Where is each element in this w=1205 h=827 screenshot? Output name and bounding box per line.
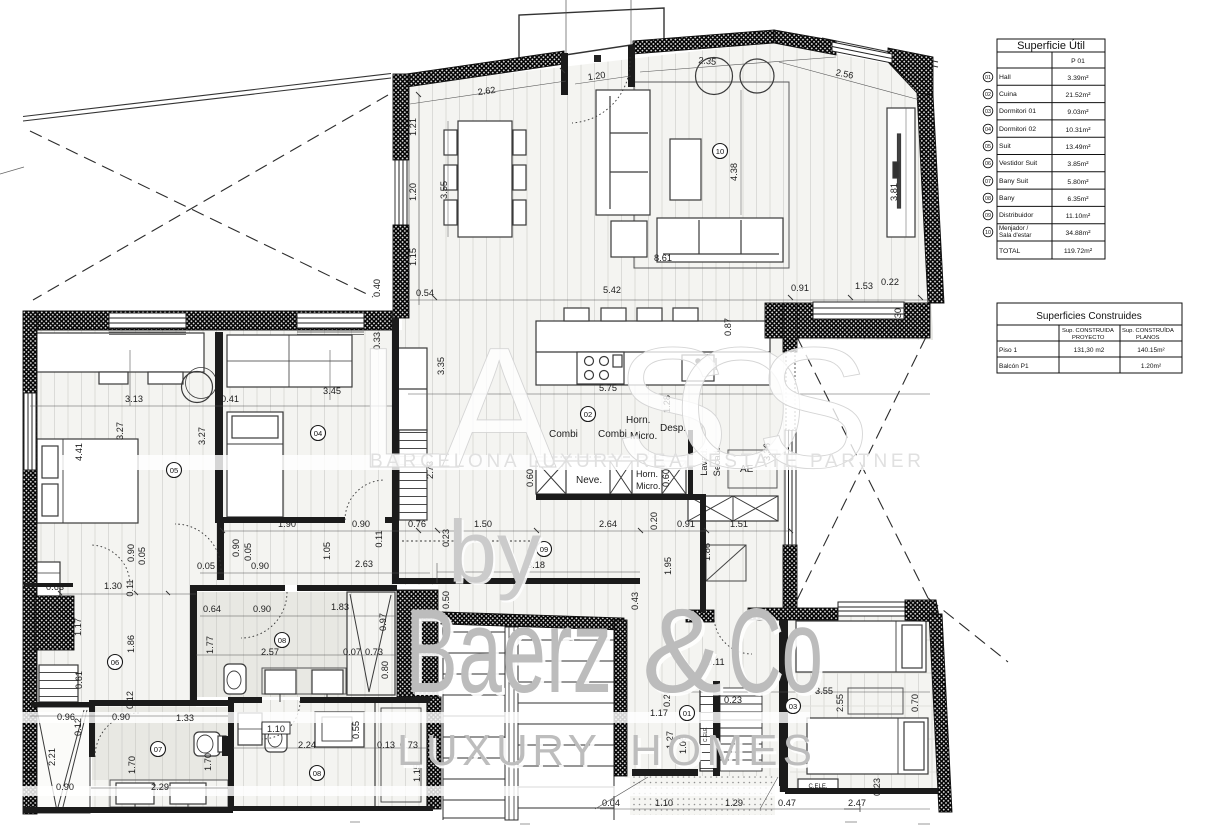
svg-text:LUXURY: LUXURY bbox=[397, 726, 597, 775]
svg-text:1.30: 1.30 bbox=[104, 581, 122, 591]
svg-text:0.40: 0.40 bbox=[372, 279, 382, 297]
svg-text:PLANOS: PLANOS bbox=[1136, 335, 1160, 341]
svg-text:4.38: 4.38 bbox=[729, 163, 739, 181]
svg-text:0.23: 0.23 bbox=[872, 778, 882, 796]
svg-text:0.90: 0.90 bbox=[126, 544, 136, 562]
svg-text:0.47: 0.47 bbox=[778, 798, 796, 808]
svg-text:0.05: 0.05 bbox=[243, 543, 253, 561]
svg-text:1.21: 1.21 bbox=[408, 118, 418, 136]
svg-text:P 01: P 01 bbox=[1071, 58, 1085, 65]
svg-text:Superficies Construides: Superficies Construides bbox=[1036, 311, 1142, 322]
svg-text:3.27: 3.27 bbox=[197, 427, 207, 445]
svg-text:Suit: Suit bbox=[999, 143, 1011, 150]
svg-text:Co: Co bbox=[728, 584, 823, 718]
svg-text:131,30 m2: 131,30 m2 bbox=[1074, 347, 1105, 354]
svg-text:Piso 1: Piso 1 bbox=[999, 347, 1017, 354]
svg-text:3.13: 3.13 bbox=[125, 394, 143, 404]
svg-text:0.13: 0.13 bbox=[377, 740, 395, 750]
svg-text:0.43: 0.43 bbox=[630, 592, 640, 610]
svg-text:34.88m²: 34.88m² bbox=[1066, 230, 1092, 237]
svg-text:0.55: 0.55 bbox=[351, 721, 361, 739]
svg-text:9.03m²: 9.03m² bbox=[1067, 109, 1089, 116]
svg-text:1.90: 1.90 bbox=[278, 519, 296, 529]
svg-text:C.ELE.: C.ELE. bbox=[808, 784, 827, 790]
svg-text:2.55: 2.55 bbox=[835, 694, 845, 712]
svg-text:0.90: 0.90 bbox=[251, 561, 269, 571]
svg-text:0.97: 0.97 bbox=[378, 613, 388, 631]
svg-text:0.22: 0.22 bbox=[881, 277, 899, 287]
svg-text:Neve.: Neve. bbox=[576, 475, 602, 486]
svg-text:0.12: 0.12 bbox=[125, 691, 135, 709]
svg-text:2.29: 2.29 bbox=[151, 782, 169, 792]
svg-text:3.81: 3.81 bbox=[889, 183, 899, 201]
svg-text:Dormitori 02: Dormitori 02 bbox=[999, 126, 1036, 133]
svg-text:06: 06 bbox=[111, 658, 119, 667]
svg-text:07: 07 bbox=[985, 179, 991, 185]
svg-text:Sala d'estar: Sala d'estar bbox=[999, 232, 1031, 239]
svg-text:1.95: 1.95 bbox=[663, 557, 673, 575]
svg-text:Sup. CONSTRUIDA: Sup. CONSTRUIDA bbox=[1062, 328, 1114, 334]
svg-text:2.47: 2.47 bbox=[848, 798, 866, 808]
svg-text:0.12: 0.12 bbox=[73, 718, 83, 736]
svg-text:0.64: 0.64 bbox=[203, 604, 221, 614]
svg-text:HOMES: HOMES bbox=[630, 726, 812, 775]
svg-text:11.10m²: 11.10m² bbox=[1066, 213, 1091, 220]
svg-text:Balcón P1: Balcón P1 bbox=[999, 363, 1029, 370]
svg-text:0.90: 0.90 bbox=[352, 519, 370, 529]
svg-text:21.52m²: 21.52m² bbox=[1066, 92, 1092, 99]
svg-text:3.27: 3.27 bbox=[115, 422, 125, 440]
svg-text:0.05: 0.05 bbox=[197, 561, 215, 571]
svg-text:0.70: 0.70 bbox=[910, 694, 920, 712]
svg-text:1.83: 1.83 bbox=[331, 602, 349, 612]
svg-text:1.53: 1.53 bbox=[855, 281, 873, 291]
svg-text:07: 07 bbox=[154, 745, 162, 754]
svg-text:13.49m²: 13.49m² bbox=[1066, 144, 1092, 151]
svg-text:1.10: 1.10 bbox=[267, 724, 285, 734]
svg-text:04: 04 bbox=[985, 127, 991, 133]
svg-text:Sup. CONSTRUÏDA: Sup. CONSTRUÏDA bbox=[1122, 327, 1174, 334]
svg-text:1.70: 1.70 bbox=[127, 756, 137, 774]
svg-text:L: L bbox=[356, 312, 452, 504]
svg-text:0.07: 0.07 bbox=[343, 647, 361, 657]
svg-text:0.04: 0.04 bbox=[602, 798, 620, 808]
svg-text:A: A bbox=[442, 312, 557, 504]
svg-text:05: 05 bbox=[985, 144, 991, 150]
svg-text:Cuina: Cuina bbox=[999, 91, 1017, 98]
svg-text:Menjador /: Menjador / bbox=[999, 225, 1029, 232]
svg-text:2.57: 2.57 bbox=[261, 647, 279, 657]
svg-text:Bany: Bany bbox=[999, 195, 1015, 202]
svg-text:3.45: 3.45 bbox=[323, 386, 341, 396]
svg-text:1.86: 1.86 bbox=[126, 635, 136, 653]
svg-text:&: & bbox=[642, 584, 722, 718]
svg-text:02: 02 bbox=[985, 92, 991, 98]
svg-text:140.15m²: 140.15m² bbox=[1137, 347, 1165, 354]
svg-text:1.10: 1.10 bbox=[655, 798, 673, 808]
svg-text:09: 09 bbox=[985, 213, 991, 219]
svg-text:5.42: 5.42 bbox=[603, 285, 621, 295]
svg-text:TOTAL: TOTAL bbox=[999, 248, 1020, 255]
svg-text:08: 08 bbox=[313, 769, 321, 778]
svg-text:BARCELONA LUXURY REAL ESTATE P: BARCELONA LUXURY REAL ESTATE PARTNER bbox=[370, 451, 925, 472]
svg-text:04: 04 bbox=[314, 429, 322, 438]
svg-text:Superficie Útil: Superficie Útil bbox=[1017, 39, 1085, 52]
svg-text:6.35m²: 6.35m² bbox=[1067, 196, 1089, 203]
svg-text:2.63: 2.63 bbox=[355, 559, 373, 569]
svg-text:08: 08 bbox=[278, 636, 286, 645]
svg-text:0.05: 0.05 bbox=[137, 547, 147, 565]
svg-text:1.20: 1.20 bbox=[408, 183, 418, 201]
svg-text:0.11: 0.11 bbox=[125, 579, 135, 596]
svg-text:1.70: 1.70 bbox=[203, 753, 213, 771]
svg-text:1.86: 1.86 bbox=[702, 543, 712, 561]
svg-text:1.33: 1.33 bbox=[176, 713, 194, 723]
svg-text:2.64: 2.64 bbox=[599, 519, 617, 529]
svg-text:3.55: 3.55 bbox=[439, 181, 449, 199]
svg-text:1.20m²: 1.20m² bbox=[1141, 363, 1162, 370]
svg-text:0.90: 0.90 bbox=[253, 604, 271, 614]
svg-text:1.77: 1.77 bbox=[205, 636, 215, 654]
svg-text:2.35: 2.35 bbox=[698, 55, 717, 67]
svg-text:Distribuidor: Distribuidor bbox=[999, 212, 1034, 219]
svg-text:0.54: 0.54 bbox=[416, 288, 434, 298]
svg-text:05: 05 bbox=[170, 466, 178, 475]
svg-text:8.61: 8.61 bbox=[654, 253, 672, 263]
svg-text:10: 10 bbox=[716, 147, 724, 156]
svg-text:0.73: 0.73 bbox=[365, 647, 383, 657]
svg-text:PROYECTO: PROYECTO bbox=[1072, 335, 1105, 341]
svg-text:1.05: 1.05 bbox=[322, 542, 332, 560]
svg-text:5.80m²: 5.80m² bbox=[1067, 179, 1089, 186]
svg-text:03: 03 bbox=[985, 109, 991, 115]
svg-text:119.72m²: 119.72m² bbox=[1064, 248, 1093, 255]
svg-text:10.31m²: 10.31m² bbox=[1066, 127, 1092, 134]
svg-text:0.91: 0.91 bbox=[791, 283, 809, 293]
svg-text:0.90: 0.90 bbox=[56, 782, 74, 792]
svg-text:0.41: 0.41 bbox=[221, 394, 239, 404]
svg-text:0.91: 0.91 bbox=[677, 519, 695, 529]
svg-text:0.11: 0.11 bbox=[374, 530, 384, 547]
svg-text:4.41: 4.41 bbox=[74, 443, 84, 461]
svg-text:1.51: 1.51 bbox=[730, 519, 748, 529]
svg-text:08: 08 bbox=[985, 196, 991, 202]
svg-text:1.17: 1.17 bbox=[73, 618, 83, 636]
svg-text:Bany Suit: Bany Suit bbox=[999, 178, 1028, 185]
svg-text:0.63: 0.63 bbox=[46, 582, 64, 592]
svg-text:2.24: 2.24 bbox=[298, 740, 316, 750]
svg-text:S: S bbox=[756, 312, 871, 504]
svg-text:Baerz: Baerz bbox=[405, 584, 612, 718]
svg-text:0.20: 0.20 bbox=[649, 512, 659, 530]
svg-text:0.30: 0.30 bbox=[893, 308, 903, 326]
svg-text:01: 01 bbox=[985, 75, 991, 81]
svg-text:Vestidor Suit: Vestidor Suit bbox=[999, 160, 1037, 167]
svg-text:0.80: 0.80 bbox=[380, 661, 390, 679]
svg-text:0.76: 0.76 bbox=[408, 519, 426, 529]
svg-text:02: 02 bbox=[584, 410, 592, 419]
svg-text:06: 06 bbox=[985, 161, 991, 167]
svg-text:10: 10 bbox=[985, 230, 991, 236]
svg-text:0.61: 0.61 bbox=[74, 671, 84, 689]
svg-text:3.39m²: 3.39m² bbox=[1067, 75, 1089, 82]
svg-text:1.29: 1.29 bbox=[725, 798, 743, 808]
svg-text:Hall: Hall bbox=[999, 74, 1011, 81]
svg-text:Dormitori 01: Dormitori 01 bbox=[999, 108, 1036, 115]
svg-text:1.15: 1.15 bbox=[408, 248, 418, 266]
svg-text:2.21: 2.21 bbox=[47, 748, 57, 766]
svg-text:0.90: 0.90 bbox=[112, 712, 130, 722]
svg-text:3.85m²: 3.85m² bbox=[1067, 161, 1089, 168]
svg-text:0.90: 0.90 bbox=[231, 539, 241, 557]
